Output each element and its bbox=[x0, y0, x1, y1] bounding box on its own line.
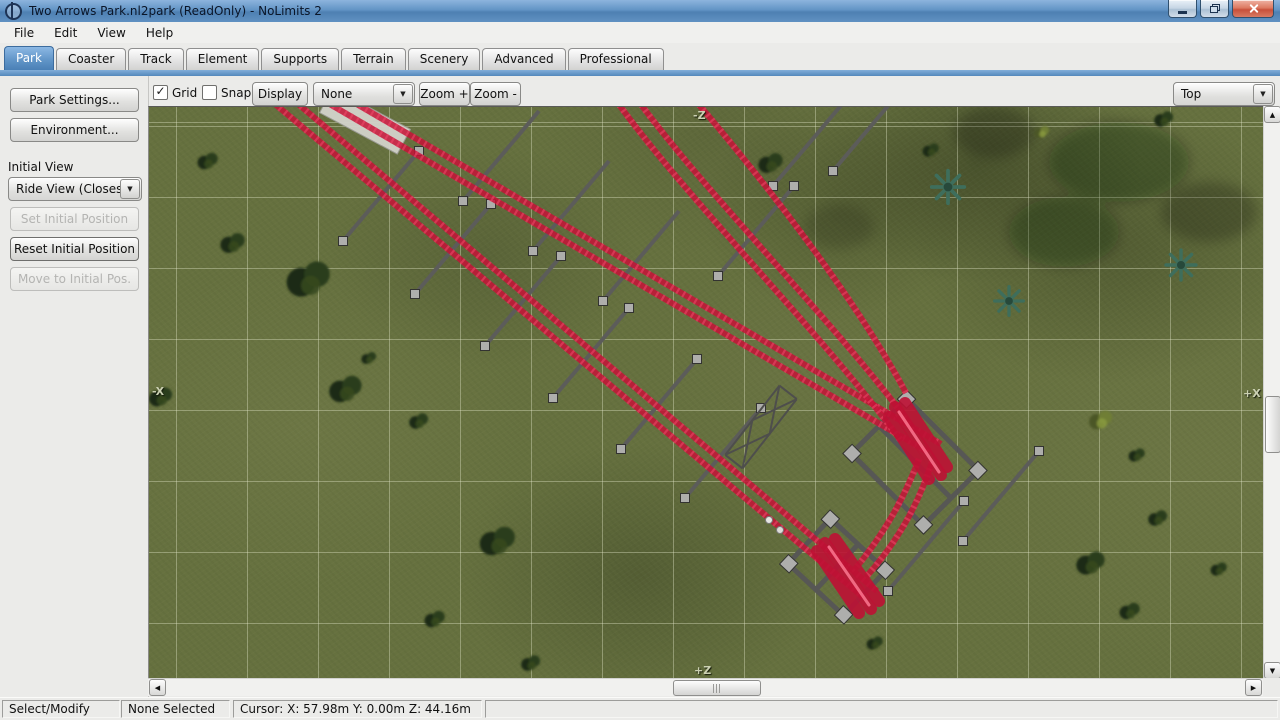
axis-label-posx: +X bbox=[1243, 387, 1261, 400]
tab-terrain[interactable]: Terrain bbox=[341, 48, 406, 70]
park-settings-button[interactable]: Park Settings... bbox=[10, 88, 139, 112]
tab-park[interactable]: Park bbox=[4, 46, 54, 70]
minimize-button[interactable] bbox=[1168, 0, 1197, 18]
application-window: Two Arrows Park.nl2park (ReadOnly) - NoL… bbox=[0, 0, 1280, 720]
tab-element[interactable]: Element bbox=[186, 48, 260, 70]
initial-view-dropdown[interactable]: Ride View (Closest ▼ bbox=[8, 177, 142, 201]
horizontal-scrollbar[interactable]: ◀ ▶ bbox=[148, 678, 1263, 696]
scrollbar-corner bbox=[1263, 678, 1280, 695]
status-mode: Select/Modify bbox=[2, 700, 120, 718]
support-truss bbox=[725, 386, 797, 469]
terrain-shadows bbox=[804, 107, 1257, 267]
axis-label-negx: -X bbox=[152, 385, 164, 398]
grid-label: Grid bbox=[172, 86, 197, 100]
horizontal-scroll-thumb[interactable] bbox=[673, 680, 761, 696]
tab-track[interactable]: Track bbox=[128, 48, 183, 70]
support-beams bbox=[339, 107, 1044, 596]
scroll-down-button[interactable]: ▼ bbox=[1264, 662, 1280, 679]
environment-button[interactable]: Environment... bbox=[10, 118, 139, 142]
axis-label-posz: +Z bbox=[694, 664, 711, 677]
view-direction-dropdown[interactable]: Top ▼ bbox=[1173, 82, 1275, 106]
toolbar: ✓ Grid Snap Display None ▼ Zoom + Zoom -… bbox=[148, 76, 1280, 106]
grid-checkbox[interactable]: ✓ bbox=[153, 85, 168, 100]
status-cursor: Cursor: X: 57.98m Y: 0.00m Z: 44.16m bbox=[233, 700, 482, 718]
tab-supports[interactable]: Supports bbox=[261, 48, 339, 70]
check-icon: ✓ bbox=[155, 84, 165, 98]
restore-button[interactable] bbox=[1200, 0, 1229, 18]
window-title: Two Arrows Park.nl2park (ReadOnly) - NoL… bbox=[29, 4, 322, 18]
set-initial-position-button[interactable]: Set Initial Position bbox=[10, 207, 139, 231]
viewport-scene bbox=[149, 107, 1264, 679]
vertical-scrollbar[interactable]: ▲ ▼ bbox=[1263, 106, 1280, 678]
scroll-down-icon: ▼ bbox=[1270, 667, 1275, 675]
chevron-down-icon: ▼ bbox=[1253, 84, 1273, 104]
menu-item-edit[interactable]: Edit bbox=[44, 24, 87, 42]
menu-item-help[interactable]: Help bbox=[136, 24, 183, 42]
scroll-up-button[interactable]: ▲ bbox=[1264, 106, 1280, 123]
vertical-scroll-thumb[interactable] bbox=[1265, 396, 1280, 453]
menu-item-view[interactable]: View bbox=[87, 24, 135, 42]
zoom-in-button[interactable]: Zoom + bbox=[419, 82, 470, 106]
reset-initial-position-button[interactable]: Reset Initial Position bbox=[10, 237, 139, 261]
snap-label: Snap bbox=[221, 86, 251, 100]
menu-item-file[interactable]: File bbox=[4, 24, 44, 42]
tab-professional[interactable]: Professional bbox=[568, 48, 664, 70]
display-mode-dropdown[interactable]: None ▼ bbox=[313, 82, 415, 106]
snap-checkbox[interactable] bbox=[202, 85, 217, 100]
initial-view-label: Initial View bbox=[8, 160, 74, 174]
chevron-down-icon: ▼ bbox=[393, 84, 413, 104]
scroll-left-icon: ◀ bbox=[155, 684, 160, 692]
trees bbox=[149, 111, 1227, 670]
status-selection: None Selected bbox=[121, 700, 230, 718]
scroll-right-icon: ▶ bbox=[1251, 684, 1256, 692]
scroll-left-button[interactable]: ◀ bbox=[149, 679, 166, 696]
title-bar: Two Arrows Park.nl2park (ReadOnly) - NoL… bbox=[0, 0, 1280, 23]
status-bar: Select/Modify None Selected Cursor: X: 5… bbox=[0, 697, 1280, 720]
minimize-icon bbox=[1178, 11, 1187, 14]
menu-bar: File Edit View Help bbox=[0, 22, 1280, 44]
tab-coaster[interactable]: Coaster bbox=[56, 48, 126, 70]
restore-icon bbox=[1210, 4, 1220, 13]
viewport-canvas[interactable]: -Z +Z -X +X bbox=[148, 106, 1264, 679]
axis-label-negz: -Z bbox=[693, 109, 706, 122]
close-icon bbox=[1248, 3, 1259, 14]
chevron-down-icon: ▼ bbox=[120, 179, 140, 199]
app-icon bbox=[5, 3, 22, 20]
move-to-initial-pos-button[interactable]: Move to Initial Pos. bbox=[10, 267, 139, 291]
scroll-right-button[interactable]: ▶ bbox=[1245, 679, 1262, 696]
scroll-up-icon: ▲ bbox=[1270, 111, 1275, 119]
close-button[interactable] bbox=[1232, 0, 1274, 18]
zoom-out-button[interactable]: Zoom - bbox=[470, 82, 521, 106]
park-sidebar: Park Settings... Environment... Initial … bbox=[0, 76, 149, 697]
coaster-track bbox=[269, 107, 941, 597]
tab-advanced[interactable]: Advanced bbox=[482, 48, 565, 70]
tab-scenery[interactable]: Scenery bbox=[408, 48, 481, 70]
status-extra bbox=[485, 700, 1278, 718]
tab-bar: Park Coaster Track Element Supports Terr… bbox=[0, 43, 1280, 70]
display-button[interactable]: Display bbox=[252, 82, 308, 106]
